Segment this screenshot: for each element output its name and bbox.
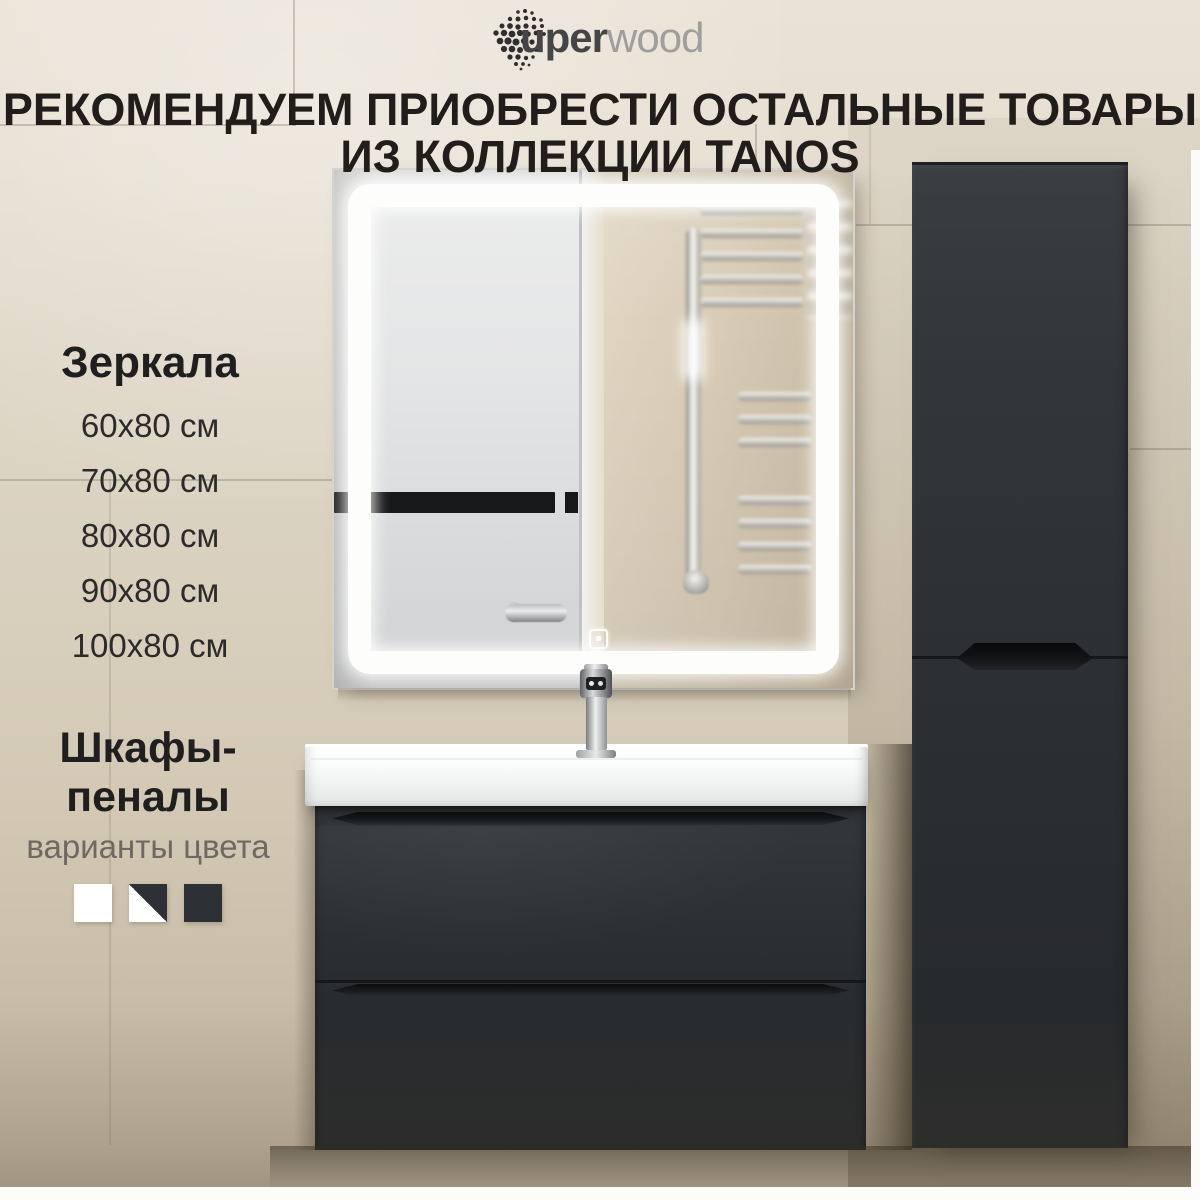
drawer-handle-groove xyxy=(332,812,849,825)
cabinets-title: Шкафы-пеналы xyxy=(0,724,296,822)
mirror-size-item: 60x80 см xyxy=(20,398,280,453)
logo-prefix: uper xyxy=(520,14,607,61)
pencil-cabinets-info: Шкафы-пеналы варианты цвета xyxy=(0,724,296,922)
mirror-size-item: 100x80 см xyxy=(20,618,280,673)
headline-line2: ИЗ КОЛЛЕКЦИИ TANOS xyxy=(0,133,1200,180)
drawer-handle-groove xyxy=(332,984,849,997)
touch-sensor-icon xyxy=(589,629,608,649)
mirror-size-item: 80x80 см xyxy=(20,508,280,563)
brand-logo: uperwood xyxy=(486,4,726,74)
color-swatch-white-icon xyxy=(74,884,112,922)
cabinets-subtitle: варианты цвета xyxy=(0,828,296,866)
mirrors-title: Зеркала xyxy=(20,338,280,388)
product-banner: uperwood РЕКОМЕНДУЕМ ПРИОБРЕСТИ ОСТАЛЬНЫ… xyxy=(0,0,1200,1200)
faucet xyxy=(576,664,616,760)
led-frame xyxy=(348,184,839,674)
color-swatches xyxy=(0,884,296,922)
mirrors-info: Зеркала 60x80 см 70x80 см 80x80 см 90x80… xyxy=(20,338,280,673)
led-mirror xyxy=(332,168,855,690)
mirror-size-item: 70x80 см xyxy=(20,453,280,508)
mirror-size-item: 90x80 см xyxy=(20,563,280,618)
drawer-seam xyxy=(315,980,866,983)
photo-border-bottom xyxy=(0,1187,1200,1200)
logo-text: uperwood xyxy=(520,14,703,62)
color-swatch-white-dark-icon xyxy=(129,884,167,922)
tile-grout xyxy=(1130,448,1192,450)
photo-border-right xyxy=(1191,150,1200,1200)
logo-suffix: wood xyxy=(607,14,703,61)
headline-line1: РЕКОМЕНДУЕМ ПРИОБРЕСТИ ОСТАЛЬНЫЕ ТОВАРЫ xyxy=(0,86,1200,133)
headline: РЕКОМЕНДУЕМ ПРИОБРЕСТИ ОСТАЛЬНЫЕ ТОВАРЫ … xyxy=(0,86,1200,180)
color-swatch-dark-icon xyxy=(184,884,222,922)
cabinet-handle-notch xyxy=(957,643,1093,670)
